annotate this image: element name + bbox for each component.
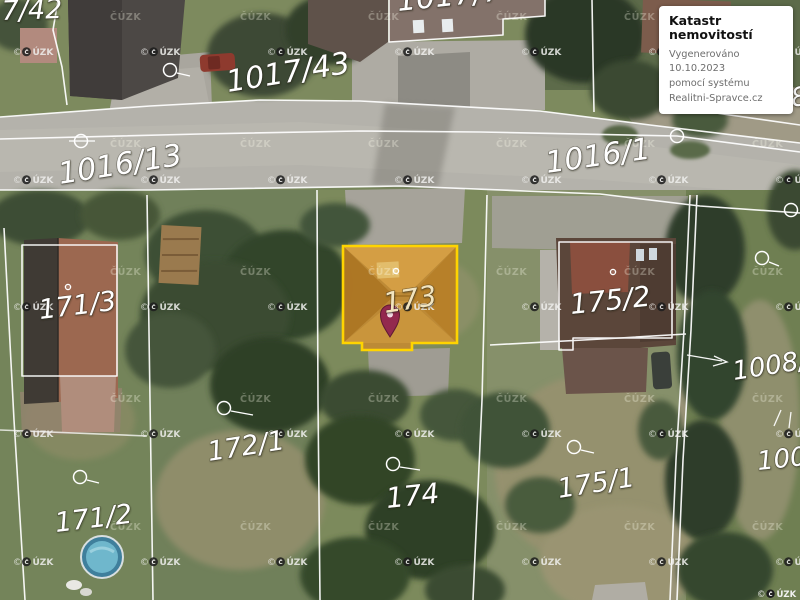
cuzk-logo-watermark: ©ČÚZK	[775, 301, 800, 313]
svg-text:ÚZK: ÚZK	[287, 301, 309, 313]
svg-text:Č: Č	[278, 304, 282, 311]
building-point-dot	[610, 269, 615, 274]
cuzk-logo-watermark: ©ČÚZK	[775, 174, 800, 186]
cuzk-logo-watermark: ©ČÚZK	[394, 428, 435, 440]
cuzk-faint-watermark: ČÚZK	[752, 393, 783, 405]
cuzk-faint-watermark: ČÚZK	[368, 266, 399, 278]
svg-text:ÚZK: ÚZK	[414, 46, 436, 58]
svg-text:ÚZK: ÚZK	[541, 428, 563, 440]
svg-text:©: ©	[13, 48, 22, 58]
svg-text:Č: Č	[769, 591, 773, 598]
svg-text:Č: Č	[532, 559, 536, 566]
cuzk-logo-watermark: ©ČÚZK	[267, 174, 308, 186]
svg-text:Č: Č	[659, 304, 663, 311]
building-point-dot	[65, 284, 70, 289]
svg-text:©: ©	[394, 176, 403, 186]
info-box-system-name: Realitni-Spravce.cz	[669, 92, 783, 107]
info-box-system-note: pomocí systému	[669, 77, 783, 92]
svg-text:ÚZK: ÚZK	[287, 428, 309, 440]
svg-text:©: ©	[13, 558, 22, 568]
svg-text:ÚZK: ÚZK	[33, 556, 55, 568]
info-box-generated-date: Vygenerováno 10.10.2023	[669, 48, 783, 77]
cuzk-faint-watermark: ČÚZK	[368, 521, 399, 533]
svg-text:©: ©	[267, 558, 276, 568]
svg-text:©: ©	[521, 430, 530, 440]
svg-text:©: ©	[394, 430, 403, 440]
svg-text:©: ©	[13, 430, 22, 440]
svg-text:Č: Č	[24, 431, 28, 438]
cuzk-faint-watermark: ČÚZK	[110, 266, 141, 278]
cuzk-faint-watermark: ČÚZK	[752, 266, 783, 278]
svg-text:ÚZK: ÚZK	[414, 428, 436, 440]
cuzk-logo-watermark: ©ČÚZK	[521, 556, 562, 568]
svg-text:Č: Č	[659, 431, 663, 438]
cuzk-logo-watermark: ©ČÚZK	[140, 301, 181, 313]
svg-text:Č: Č	[24, 304, 28, 311]
svg-text:ÚZK: ÚZK	[160, 301, 182, 313]
svg-text:ÚZK: ÚZK	[541, 301, 563, 313]
svg-text:©: ©	[267, 303, 276, 313]
svg-text:ÚZK: ÚZK	[795, 556, 800, 568]
svg-text:Č: Č	[532, 431, 536, 438]
info-box-title: Katastr nemovitostí	[669, 14, 783, 43]
svg-text:ÚZK: ÚZK	[287, 556, 309, 568]
cuzk-logo-watermark: ©ČÚZK	[13, 174, 54, 186]
cadastral-map-view[interactable]: ČÚZKČÚZKČÚZKČÚZKČÚZKČÚZKČÚZKČÚZKČÚZKČÚZK…	[0, 0, 800, 600]
svg-text:©: ©	[394, 558, 403, 568]
cuzk-logo-watermark: ©ČÚZK	[521, 46, 562, 58]
svg-text:Č: Č	[786, 177, 790, 184]
cuzk-faint-watermark: ČÚZK	[368, 11, 399, 23]
car-dark	[651, 351, 673, 389]
svg-text:ÚZK: ÚZK	[33, 174, 55, 186]
cuzk-logo-watermark: ©ČÚZK	[140, 556, 181, 568]
cuzk-logo-watermark: ©ČÚZK	[140, 428, 181, 440]
svg-text:Č: Č	[24, 177, 28, 184]
svg-text:©: ©	[775, 430, 784, 440]
cuzk-logo-watermark: ©ČÚZK	[394, 46, 435, 58]
cuzk-faint-watermark: ČÚZK	[240, 393, 271, 405]
cuzk-logo-watermark: ©ČÚZK	[775, 428, 800, 440]
cuzk-logo-watermark: ©ČÚZK	[648, 301, 689, 313]
svg-text:ÚZK: ÚZK	[160, 428, 182, 440]
cuzk-logo-watermark: ©ČÚZK	[757, 588, 797, 600]
svg-text:©: ©	[13, 176, 22, 186]
svg-text:ÚZK: ÚZK	[160, 46, 182, 58]
cuzk-faint-watermark: ČÚZK	[496, 11, 527, 23]
cuzk-faint-watermark: ČÚZK	[240, 266, 271, 278]
svg-text:ÚZK: ÚZK	[414, 556, 436, 568]
cuzk-logo-watermark: ©ČÚZK	[140, 46, 181, 58]
cuzk-logo-watermark: ©ČÚZK	[648, 556, 689, 568]
svg-text:Č: Č	[405, 431, 409, 438]
cuzk-faint-watermark: ČÚZK	[240, 521, 271, 533]
cuzk-logo-watermark: ©ČÚZK	[13, 46, 54, 58]
svg-text:ÚZK: ÚZK	[795, 428, 800, 440]
cuzk-faint-watermark: ČÚZK	[624, 521, 655, 533]
woodpile	[159, 225, 202, 285]
svg-text:©: ©	[757, 590, 766, 600]
cuzk-logo-watermark: ©ČÚZK	[648, 174, 689, 186]
cuzk-logo-watermark: ©ČÚZK	[267, 556, 308, 568]
svg-text:ÚZK: ÚZK	[160, 556, 182, 568]
svg-text:ÚZK: ÚZK	[668, 428, 690, 440]
svg-text:ÚZK: ÚZK	[668, 301, 690, 313]
cuzk-faint-watermark: ČÚZK	[752, 138, 783, 150]
cuzk-faint-watermark: ČÚZK	[496, 393, 527, 405]
svg-text:Č: Č	[24, 49, 28, 56]
parcel-label-7-42: 7/42	[1, 0, 63, 27]
parcel-label-174: 174	[384, 477, 441, 515]
cuzk-logo-watermark: ©ČÚZK	[521, 428, 562, 440]
cuzk-logo-watermark: ©ČÚZK	[267, 301, 308, 313]
svg-text:ÚZK: ÚZK	[777, 588, 797, 600]
svg-text:ÚZK: ÚZK	[414, 174, 436, 186]
svg-text:Č: Č	[405, 559, 409, 566]
svg-text:ÚZK: ÚZK	[668, 174, 690, 186]
svg-text:Č: Č	[786, 559, 790, 566]
cuzk-logo-watermark: ©ČÚZK	[521, 301, 562, 313]
svg-text:©: ©	[140, 48, 149, 58]
svg-text:ÚZK: ÚZK	[668, 556, 690, 568]
svg-text:Č: Č	[151, 559, 155, 566]
corner-attribution: ©ČÚZK	[757, 588, 797, 600]
svg-text:©: ©	[775, 176, 784, 186]
cuzk-faint-watermark: ČÚZK	[496, 266, 527, 278]
svg-text:ÚZK: ÚZK	[795, 46, 800, 58]
svg-text:©: ©	[775, 558, 784, 568]
svg-text:©: ©	[521, 176, 530, 186]
cuzk-faint-watermark: ČÚZK	[624, 393, 655, 405]
cuzk-faint-watermark: ČÚZK	[624, 11, 655, 23]
svg-text:Č: Č	[151, 177, 155, 184]
svg-text:ÚZK: ÚZK	[287, 174, 309, 186]
cuzk-faint-watermark: ČÚZK	[110, 393, 141, 405]
cuzk-faint-watermark: ČÚZK	[624, 266, 655, 278]
svg-text:Č: Č	[532, 177, 536, 184]
svg-text:©: ©	[521, 48, 530, 58]
cuzk-faint-watermark: ČÚZK	[110, 11, 141, 23]
svg-text:Č: Č	[151, 431, 155, 438]
svg-text:Č: Č	[532, 304, 536, 311]
svg-text:Č: Č	[278, 177, 282, 184]
cuzk-logo-watermark: ©ČÚZK	[13, 556, 54, 568]
svg-text:Č: Č	[24, 559, 28, 566]
svg-text:©: ©	[648, 48, 657, 58]
svg-text:Č: Č	[278, 559, 282, 566]
cuzk-faint-watermark: ČÚZK	[240, 138, 271, 150]
svg-text:Č: Č	[786, 304, 790, 311]
svg-text:Č: Č	[786, 431, 790, 438]
svg-text:ÚZK: ÚZK	[795, 174, 800, 186]
cuzk-faint-watermark: ČÚZK	[496, 521, 527, 533]
cuzk-logo-watermark: ©ČÚZK	[13, 428, 54, 440]
svg-text:©: ©	[648, 430, 657, 440]
svg-text:©: ©	[140, 303, 149, 313]
cuzk-faint-watermark: ČÚZK	[752, 521, 783, 533]
svg-text:©: ©	[140, 558, 149, 568]
svg-text:©: ©	[775, 303, 784, 313]
svg-text:©: ©	[267, 176, 276, 186]
cuzk-faint-watermark: ČÚZK	[240, 11, 271, 23]
cuzk-logo-watermark: ©ČÚZK	[775, 556, 800, 568]
svg-text:©: ©	[140, 430, 149, 440]
cuzk-faint-watermark: ČÚZK	[368, 138, 399, 150]
cuzk-logo-watermark: ©ČÚZK	[394, 174, 435, 186]
cuzk-logo-watermark: ©ČÚZK	[648, 428, 689, 440]
cuzk-faint-watermark: ČÚZK	[368, 393, 399, 405]
svg-text:Č: Č	[405, 177, 409, 184]
svg-text:©: ©	[648, 176, 657, 186]
svg-text:Č: Č	[151, 49, 155, 56]
svg-text:©: ©	[13, 303, 22, 313]
svg-text:©: ©	[521, 303, 530, 313]
parcel-label-1008: 1008	[756, 440, 800, 477]
info-box: Katastr nemovitostí Vygenerováno 10.10.2…	[659, 6, 793, 114]
svg-text:ÚZK: ÚZK	[795, 301, 800, 313]
svg-text:ÚZK: ÚZK	[33, 46, 55, 58]
svg-text:©: ©	[394, 48, 403, 58]
cuzk-faint-watermark: ČÚZK	[496, 138, 527, 150]
svg-text:ÚZK: ÚZK	[541, 46, 563, 58]
svg-text:©: ©	[648, 558, 657, 568]
svg-text:ÚZK: ÚZK	[541, 556, 563, 568]
svg-text:Č: Č	[659, 177, 663, 184]
svg-text:Č: Č	[659, 559, 663, 566]
cuzk-logo-watermark: ©ČÚZK	[394, 556, 435, 568]
building-171-3	[24, 238, 118, 432]
svg-text:Č: Č	[405, 49, 409, 56]
svg-text:Č: Č	[532, 49, 536, 56]
svg-text:Č: Č	[151, 304, 155, 311]
svg-text:©: ©	[521, 558, 530, 568]
svg-text:ÚZK: ÚZK	[33, 428, 55, 440]
